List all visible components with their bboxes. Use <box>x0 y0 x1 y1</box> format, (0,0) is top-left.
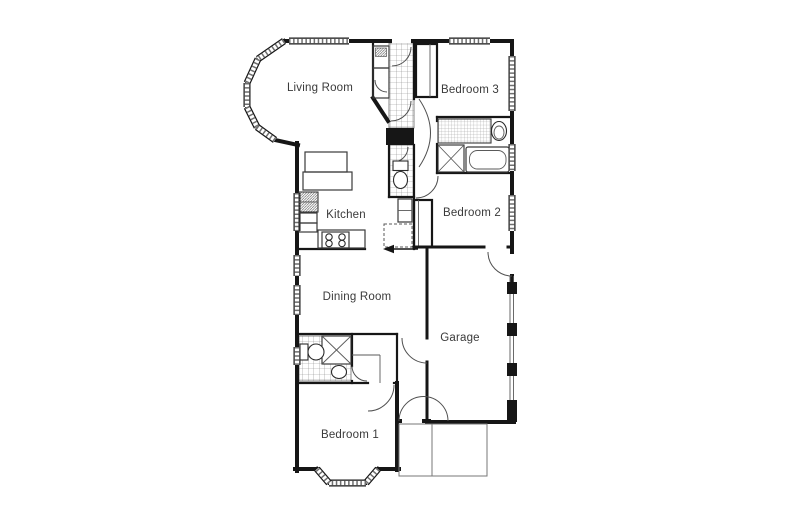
room-label-dining-room: Dining Room <box>323 291 392 303</box>
room-label-living-room: Living Room <box>287 82 353 94</box>
closet-door-arc <box>375 80 387 92</box>
ensuite-toilet-tank <box>300 344 308 360</box>
ensuite-toilet-bowl <box>308 344 324 360</box>
front-porch <box>399 424 487 476</box>
stove-burner <box>339 240 345 246</box>
garage-pilaster <box>507 363 517 376</box>
foyer-angled-wall <box>373 98 388 121</box>
kitchen-counter-peninsula <box>303 172 352 190</box>
garage-pilaster <box>507 282 517 294</box>
wc-toilet-bowl <box>394 172 408 189</box>
kitchen-fixtures <box>299 152 365 248</box>
bedroom2-door-arc <box>416 176 438 198</box>
bedroom1-door-arc <box>368 385 394 411</box>
garage-door-wall <box>507 276 517 422</box>
page-background: Living Room Bedroom 3 Kitchen Bedroom 2 … <box>0 0 790 527</box>
room-label-garage: Garage <box>440 332 480 344</box>
bay-window-segment <box>258 41 284 59</box>
front-entry-door-arc <box>399 397 448 422</box>
vanity-counter <box>438 119 491 143</box>
stove-burner <box>326 240 332 246</box>
ensuite-sink-icon <box>332 366 347 379</box>
stove-burner <box>326 234 332 240</box>
bedroom2-closet <box>414 200 432 247</box>
room-label-bedroom-2: Bedroom 2 <box>443 207 501 219</box>
room-label-bedroom-3: Bedroom 3 <box>441 84 499 96</box>
entry-foyer-tile-floor <box>389 43 414 128</box>
bathroom-fixtures <box>438 119 509 172</box>
entry-closet-shelf <box>376 48 387 57</box>
bedroom1-bay-window-segment <box>317 469 329 483</box>
foyer-south-wall-block <box>386 128 414 145</box>
room-label-kitchen: Kitchen <box>326 209 366 221</box>
bedroom1-bay-window-segment <box>366 469 378 483</box>
bay-window-segment <box>247 107 257 127</box>
hall-double-door-arc <box>419 99 431 167</box>
room-label-bedroom-1: Bedroom 1 <box>321 429 379 441</box>
wc-toilet-tank <box>393 161 408 171</box>
garage-pilaster <box>507 400 517 412</box>
garage-pilaster <box>507 323 517 336</box>
garage-corner-pilaster <box>507 412 517 422</box>
garage-access-door-arc <box>402 338 427 363</box>
bedroom3-closet <box>416 44 437 97</box>
bathtub-inner <box>470 151 507 170</box>
stove-burner <box>339 234 345 240</box>
floor-plan: Living Room Bedroom 3 Kitchen Bedroom 2 … <box>0 0 790 527</box>
appliance-space-dashed <box>384 224 412 247</box>
garage-side-door-arc <box>488 252 512 276</box>
porch-outline <box>399 424 487 476</box>
oven-icon <box>299 213 317 223</box>
kitchen-counter-upper <box>305 152 347 172</box>
bay-window-segment <box>257 127 275 140</box>
entry-arrow-head <box>383 245 394 253</box>
cabinet-icon <box>299 223 317 232</box>
bay-window-segment <box>247 59 258 83</box>
ensuite-door-arc <box>352 366 367 381</box>
